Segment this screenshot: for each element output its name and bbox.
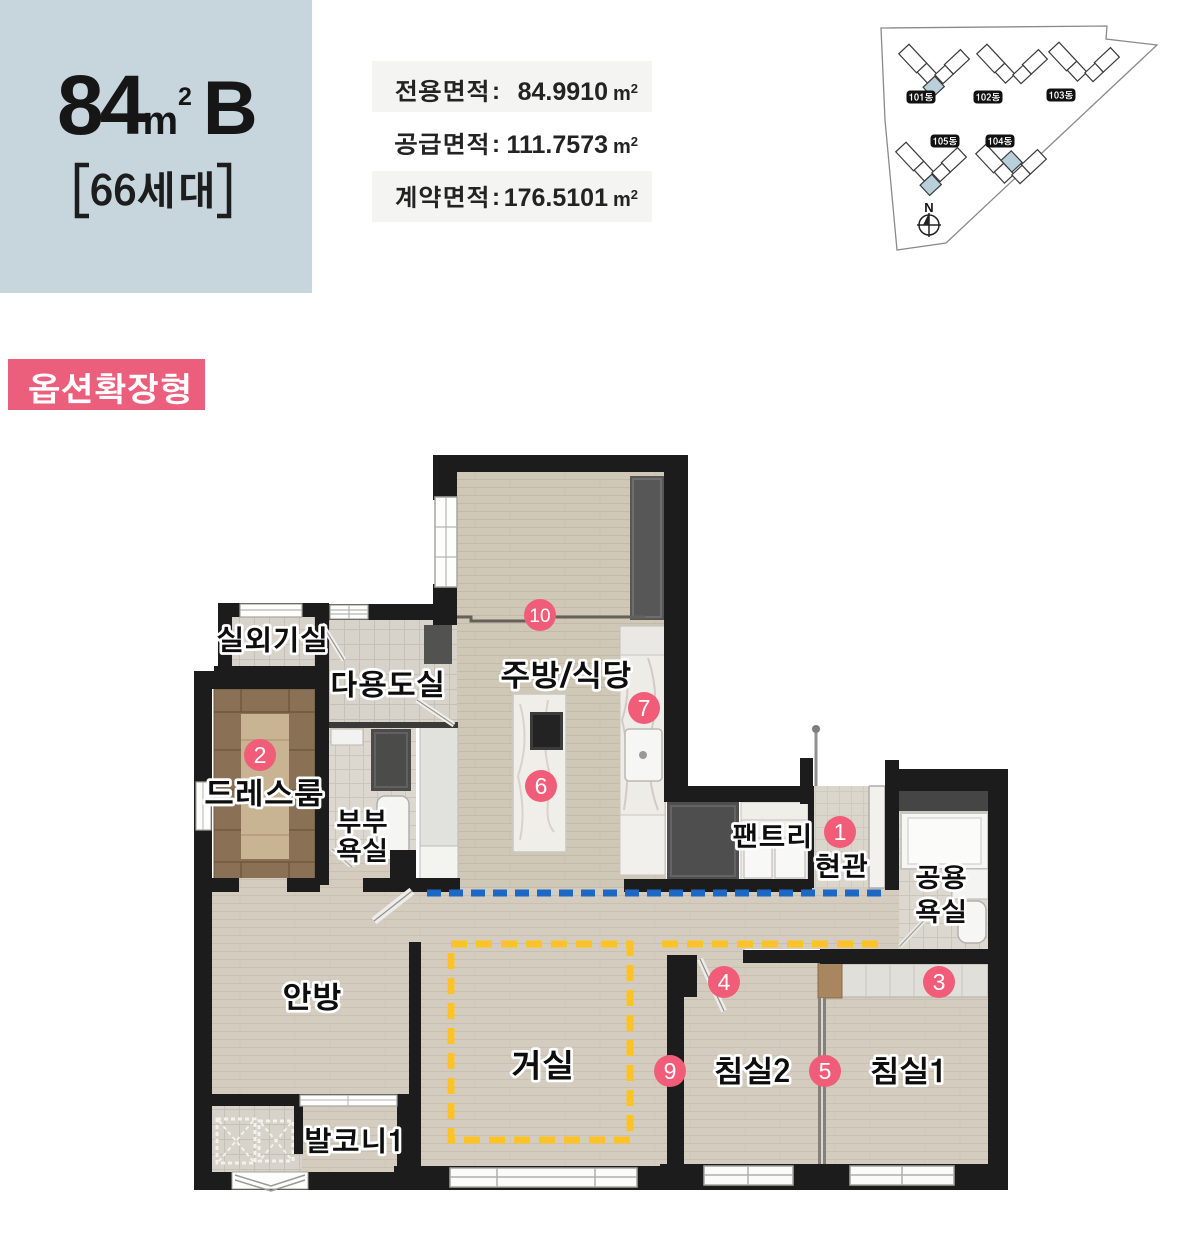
svg-text:2: 2	[254, 742, 267, 768]
svg-text:9: 9	[664, 1058, 677, 1084]
svg-text:10: 10	[529, 606, 550, 627]
svg-text:3: 3	[933, 969, 946, 995]
svg-text:4: 4	[718, 969, 731, 995]
svg-text:7: 7	[638, 695, 651, 721]
svg-text:6: 6	[535, 773, 548, 799]
svg-text:1: 1	[834, 819, 847, 845]
svg-text:5: 5	[819, 1058, 832, 1084]
